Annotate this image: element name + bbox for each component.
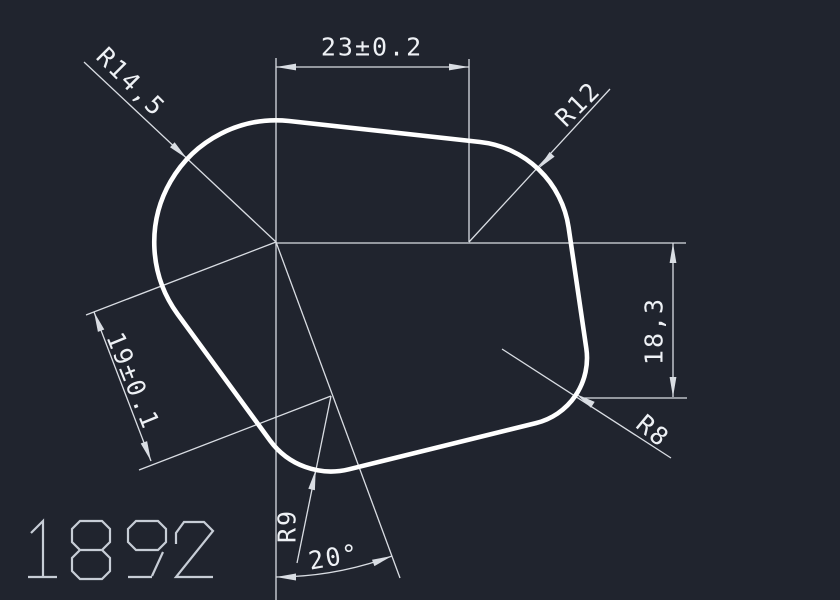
radius-bottom-right-arrow	[576, 394, 595, 408]
side-arrow-bottom	[141, 441, 151, 461]
width-arrow-right	[449, 64, 469, 71]
part-number	[28, 521, 213, 579]
side-arrow-top	[94, 312, 104, 332]
digit-8	[72, 521, 110, 579]
drawing-canvas[interactable]: 23±0.2 R14,5 R12 18,3 R8 19±0.1 R9 20°	[0, 0, 840, 600]
angle-arrow-right	[372, 556, 392, 566]
digit-1	[28, 521, 57, 577]
radius-bottom-arrow	[308, 470, 315, 490]
height-arrow-top	[670, 243, 677, 263]
dim-height-label: 18,3	[642, 297, 667, 365]
part-outline	[154, 120, 587, 471]
dim-width-label: 23±0.2	[321, 35, 423, 60]
width-arrow-left	[276, 64, 296, 71]
side-dim-extension-top	[86, 242, 276, 315]
side-dim-extension-bottom	[139, 396, 331, 470]
digit-2	[176, 522, 213, 577]
radius-top-right-arrow	[538, 152, 554, 169]
radius-top-left-arrow	[170, 142, 187, 158]
digit-9	[128, 521, 166, 577]
dimension-lines	[84, 58, 687, 600]
angle-arrow-left	[276, 574, 296, 581]
height-arrow-bottom	[670, 377, 677, 397]
radius-bottom-label: R9	[275, 509, 300, 543]
